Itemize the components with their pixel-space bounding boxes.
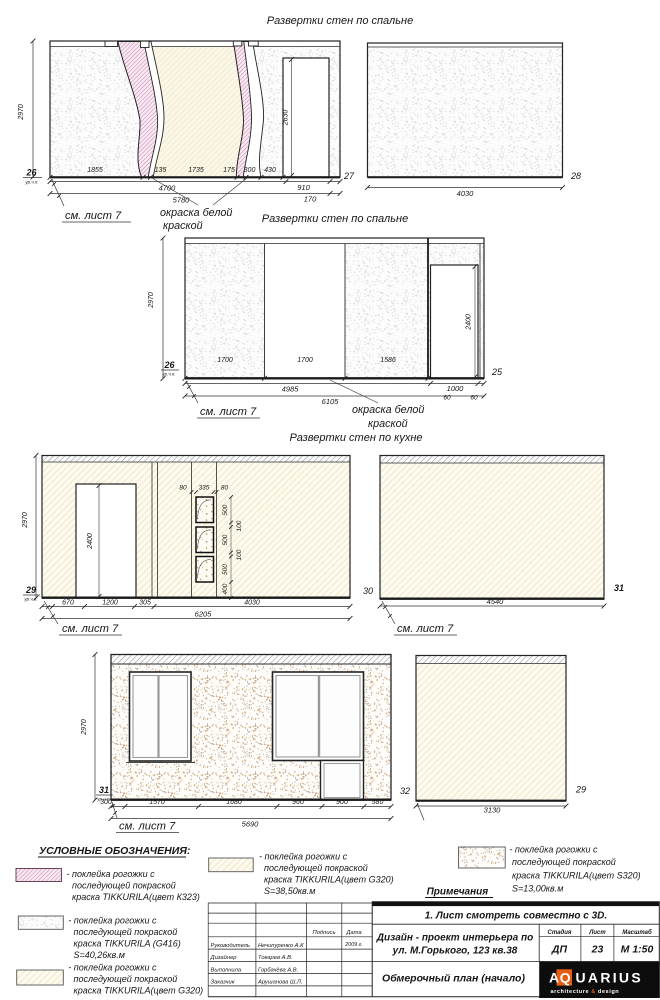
svg-text:335: 335 (199, 485, 210, 492)
svg-text:1700: 1700 (217, 357, 233, 364)
svg-text:Токарев А.В.: Токарев А.В. (258, 955, 293, 961)
svg-text:26: 26 (163, 360, 175, 370)
svg-text:2400: 2400 (87, 533, 94, 550)
svg-text:31: 31 (99, 785, 109, 795)
svg-text:31: 31 (614, 583, 624, 593)
svg-text:UARIUS: UARIUS (576, 970, 643, 986)
svg-text:80: 80 (221, 485, 229, 492)
svg-text:Дизайнер: Дизайнер (210, 954, 238, 961)
svg-text:23: 23 (591, 944, 604, 956)
svg-text:Горбачёва А.В.: Горбачёва А.В. (258, 967, 298, 973)
svg-text:29: 29 (25, 585, 36, 595)
svg-text:см. лист 7: см. лист 7 (62, 623, 119, 635)
svg-text:2970: 2970 (148, 292, 155, 309)
svg-text:ур.ч.п.: ур.ч.п. (161, 372, 175, 377)
svg-text:5780: 5780 (173, 196, 191, 205)
svg-text:S=13,00кв.м: S=13,00кв.м (512, 884, 563, 894)
svg-text:1735: 1735 (188, 167, 204, 174)
svg-text:см. лист 7: см. лист 7 (119, 821, 176, 833)
svg-text:1680: 1680 (226, 799, 242, 806)
svg-text:последующей покраской: последующей покраской (264, 863, 368, 873)
svg-text:4540: 4540 (487, 597, 505, 606)
svg-text:2630: 2630 (283, 110, 290, 127)
svg-text:60: 60 (443, 395, 451, 402)
svg-text:Руководитель: Руководитель (211, 943, 250, 949)
svg-text:ур.ч.п.: ур.ч.п. (23, 597, 37, 602)
svg-text:1700: 1700 (297, 357, 313, 364)
svg-text:960: 960 (292, 799, 304, 806)
svg-text:Развертки стен по спальне: Развертки стен по спальне (267, 15, 413, 27)
svg-text:- поклейка рогожки с: - поклейка рогожки с (259, 852, 348, 862)
svg-text:краска TIKKURILA(цвет G320): краска TIKKURILA(цвет G320) (264, 875, 394, 885)
svg-text:2400: 2400 (466, 314, 473, 331)
svg-text:30: 30 (363, 586, 373, 596)
svg-text:4700: 4700 (159, 184, 177, 193)
svg-text:300: 300 (100, 799, 112, 806)
svg-text:2970: 2970 (81, 719, 88, 736)
svg-text:32: 32 (400, 786, 410, 796)
svg-text:28: 28 (570, 171, 581, 181)
svg-text:500: 500 (222, 564, 229, 575)
svg-text:27: 27 (343, 171, 355, 181)
svg-text:ур.ч.п.: ур.ч.п. (24, 180, 38, 185)
svg-text:Развертки стен по кухне: Развертки стен по кухне (289, 432, 422, 444)
svg-text:175: 175 (223, 167, 235, 174)
svg-text:краска TIKKURILA(цвет G320): краска TIKKURILA(цвет G320) (74, 986, 204, 996)
svg-text:S=40,26кв.м: S=40,26кв.м (74, 950, 125, 960)
svg-text:окраска белой: окраска белой (160, 207, 232, 219)
svg-text:6205: 6205 (195, 610, 213, 619)
svg-text:Масштаб: Масштаб (622, 929, 652, 936)
svg-text:1586: 1586 (380, 357, 396, 364)
svg-text:- поклейка рогожки с: - поклейка рогожки с (67, 869, 156, 879)
svg-text:окраска белой: окраска белой (352, 404, 424, 416)
svg-text:М 1:50: М 1:50 (621, 944, 654, 956)
svg-text:400: 400 (222, 583, 229, 594)
svg-text:Выполнила: Выполнила (211, 967, 242, 973)
svg-text:последующей покраской: последующей покраской (74, 927, 178, 937)
svg-text:УСЛОВНЫЕ ОБОЗНАЧЕНИЯ:: УСЛОВНЫЕ ОБОЗНАЧЕНИЯ: (39, 845, 190, 857)
svg-text:Дизайн - проект интерьера по: Дизайн - проект интерьера по (376, 933, 533, 944)
svg-text:305: 305 (139, 600, 151, 607)
svg-text:1570: 1570 (149, 799, 165, 806)
svg-text:Примечания: Примечания (427, 887, 489, 898)
svg-text:Развертки стен по спальне: Развертки стен по спальне (262, 213, 408, 225)
svg-text:300: 300 (244, 167, 256, 174)
svg-text:900: 900 (336, 799, 348, 806)
svg-text:краска TIKKURILA(цвет S320): краска TIKKURILA(цвет S320) (512, 871, 641, 881)
svg-text:100: 100 (236, 549, 243, 560)
svg-text:670: 670 (62, 600, 74, 607)
svg-text:см. лист 7: см. лист 7 (65, 210, 122, 222)
svg-text:4030: 4030 (457, 189, 475, 198)
svg-text:100: 100 (236, 520, 243, 531)
svg-text:135: 135 (155, 167, 167, 174)
svg-text:Дата: Дата (345, 930, 362, 936)
svg-text:ул. М.Горького, 123 кв.38: ул. М.Горького, 123 кв.38 (392, 946, 518, 957)
svg-text:580: 580 (372, 799, 384, 806)
svg-text:4985: 4985 (282, 385, 300, 394)
svg-text:2970: 2970 (22, 512, 29, 529)
svg-text:см. лист 7: см. лист 7 (200, 406, 257, 418)
svg-text:Стадия: Стадия (548, 930, 572, 936)
svg-text:краска TIKKURILA (G416): краска TIKKURILA (G416) (74, 939, 181, 949)
svg-text:430: 430 (264, 167, 276, 174)
svg-text:500: 500 (222, 504, 229, 515)
svg-text:Арушанова Ш.Л.: Арушанова Ш.Л. (257, 980, 303, 986)
svg-text:3130: 3130 (484, 806, 502, 815)
svg-text:25: 25 (491, 367, 503, 377)
svg-text:2970: 2970 (18, 104, 25, 121)
svg-text:1200: 1200 (102, 600, 118, 607)
svg-text:5690: 5690 (242, 820, 260, 829)
svg-text:1855: 1855 (87, 167, 103, 174)
svg-text:последующей покраской: последующей покраской (72, 881, 176, 891)
svg-text:последующей покраской: последующей покраской (74, 974, 178, 984)
svg-text:29: 29 (575, 785, 586, 795)
svg-text:6105: 6105 (322, 397, 340, 406)
svg-text:S=38,50кв.м: S=38,50кв.м (264, 886, 315, 896)
svg-text:60: 60 (470, 395, 478, 402)
svg-text:4030: 4030 (244, 600, 260, 607)
svg-text:26: 26 (25, 168, 37, 178)
svg-text:Лист: Лист (588, 930, 606, 936)
svg-text:2009 г.: 2009 г. (344, 942, 363, 948)
svg-text:Q: Q (560, 970, 571, 986)
svg-text:- поклейка рогожки с: - поклейка рогожки с (68, 916, 157, 926)
svg-text:см. лист 7: см. лист 7 (397, 623, 454, 635)
svg-text:1. Лист смотреть совместно с 3: 1. Лист смотреть совместно с 3D. (425, 911, 607, 922)
svg-text:80: 80 (179, 485, 187, 492)
svg-text:910: 910 (297, 183, 310, 192)
svg-text:последующей покраской: последующей покраской (512, 857, 616, 867)
svg-text:Нечипуренко А.К: Нечипуренко А.К (258, 943, 304, 949)
svg-text:- поклейка рогожки с: - поклейка рогожки с (68, 963, 157, 973)
svg-text:Заказчик: Заказчик (211, 980, 235, 986)
svg-text:Обмерочный план (начало): Обмерочный план (начало) (382, 973, 525, 985)
svg-text:краской: краской (163, 220, 203, 232)
svg-text:500: 500 (222, 534, 229, 545)
svg-text:architecture & design: architecture & design (551, 989, 620, 995)
svg-text:- поклейка рогожки с: - поклейка рогожки с (509, 845, 598, 855)
svg-text:Подпись: Подпись (313, 930, 336, 936)
svg-text:ДП: ДП (551, 944, 568, 956)
svg-text:краска TIKKURILA(цвет К323): краска TIKKURILA(цвет К323) (72, 892, 200, 902)
svg-text:1000: 1000 (447, 384, 465, 393)
svg-text:170: 170 (304, 195, 317, 204)
svg-text:краской: краской (368, 418, 408, 430)
